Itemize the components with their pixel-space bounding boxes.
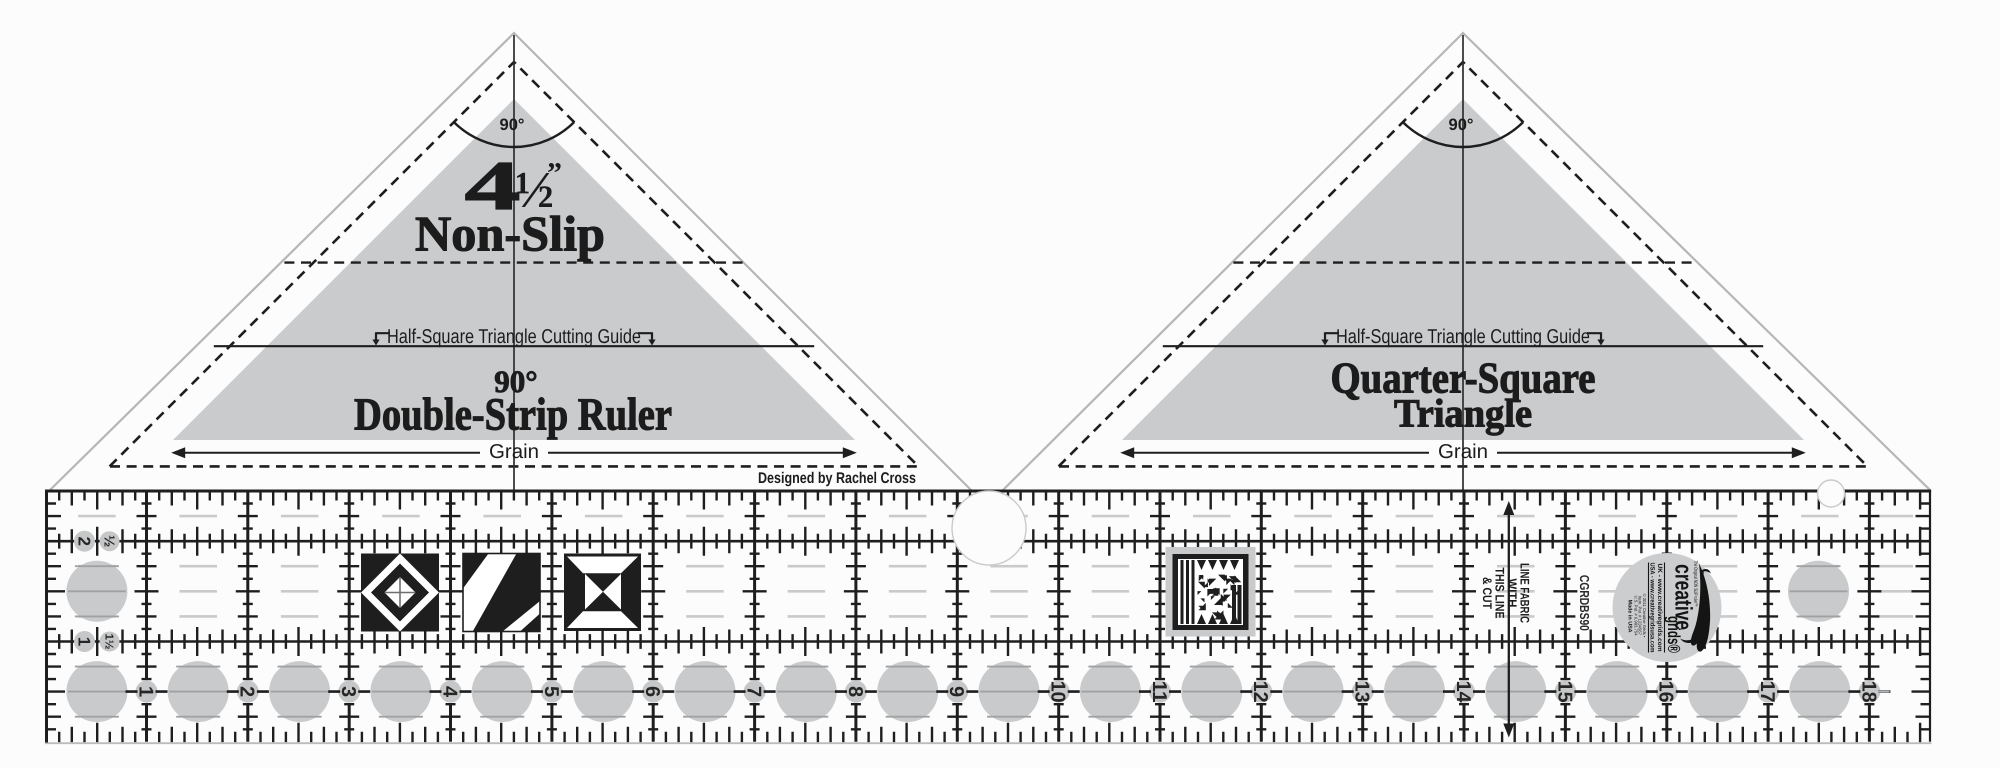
svg-text:4: 4 [438, 686, 460, 698]
svg-text:5: 5 [540, 686, 562, 697]
svg-text:11: 11 [1148, 681, 1170, 703]
svg-text:17: 17 [1756, 681, 1778, 703]
svg-text:6: 6 [641, 686, 663, 697]
svg-text:grids®: grids® [1664, 616, 1684, 653]
svg-text:16: 16 [1655, 681, 1677, 703]
svg-text:”: ” [547, 157, 562, 190]
svg-text:1: 1 [75, 637, 94, 646]
svg-text:10: 10 [1047, 681, 1069, 703]
svg-text:8: 8 [844, 686, 866, 697]
svg-text:Half-Square Triangle Cutting G: Half-Square Triangle Cutting Guide [1336, 326, 1590, 348]
svg-text:U.S. Pat. # 6,993,754: U.S. Pat. # 6,993,754 [1633, 595, 1638, 636]
svg-text:USA - www.creativegridsusa.com: USA - www.creativegridsusa.com [1649, 563, 1656, 653]
svg-text:Grain: Grain [489, 441, 539, 463]
svg-text:14: 14 [1452, 681, 1474, 704]
svg-text:90°: 90° [500, 116, 525, 134]
svg-text:1: 1 [134, 686, 156, 697]
svg-text:Designed by Rachel Cross: Designed by Rachel Cross [758, 470, 916, 487]
svg-text:18: 18 [1857, 681, 1879, 703]
svg-text:½: ½ [100, 535, 116, 547]
svg-text:12: 12 [1249, 681, 1271, 703]
svg-text:1½: 1½ [102, 634, 114, 650]
svg-text:3: 3 [337, 686, 359, 697]
svg-text:13: 13 [1351, 681, 1373, 703]
svg-text:& CUT: & CUT [1480, 577, 1494, 609]
svg-text:9: 9 [945, 686, 967, 697]
svg-text:Triangle: Triangle [1394, 391, 1532, 436]
svg-text:CGRDBS90: CGRDBS90 [1577, 575, 1592, 631]
svg-text:Half-Square Triangle Cutting G: Half-Square Triangle Cutting Guide [387, 326, 641, 348]
svg-text:Double-Strip Ruler: Double-Strip Ruler [354, 389, 672, 440]
svg-text:Made in USA: Made in USA [1627, 600, 1633, 633]
svg-text:UK - www.creativegrids.com: UK - www.creativegrids.com [1656, 564, 1663, 652]
svg-text:90°: 90° [1449, 116, 1474, 134]
svg-text:2: 2 [236, 686, 258, 697]
svg-text:Non-Slip: Non-Slip [415, 206, 605, 262]
svg-text:2: 2 [75, 536, 94, 545]
svg-text:15: 15 [1553, 681, 1575, 703]
svg-text:Grain: Grain [1438, 441, 1488, 463]
svg-text:7: 7 [742, 686, 764, 697]
